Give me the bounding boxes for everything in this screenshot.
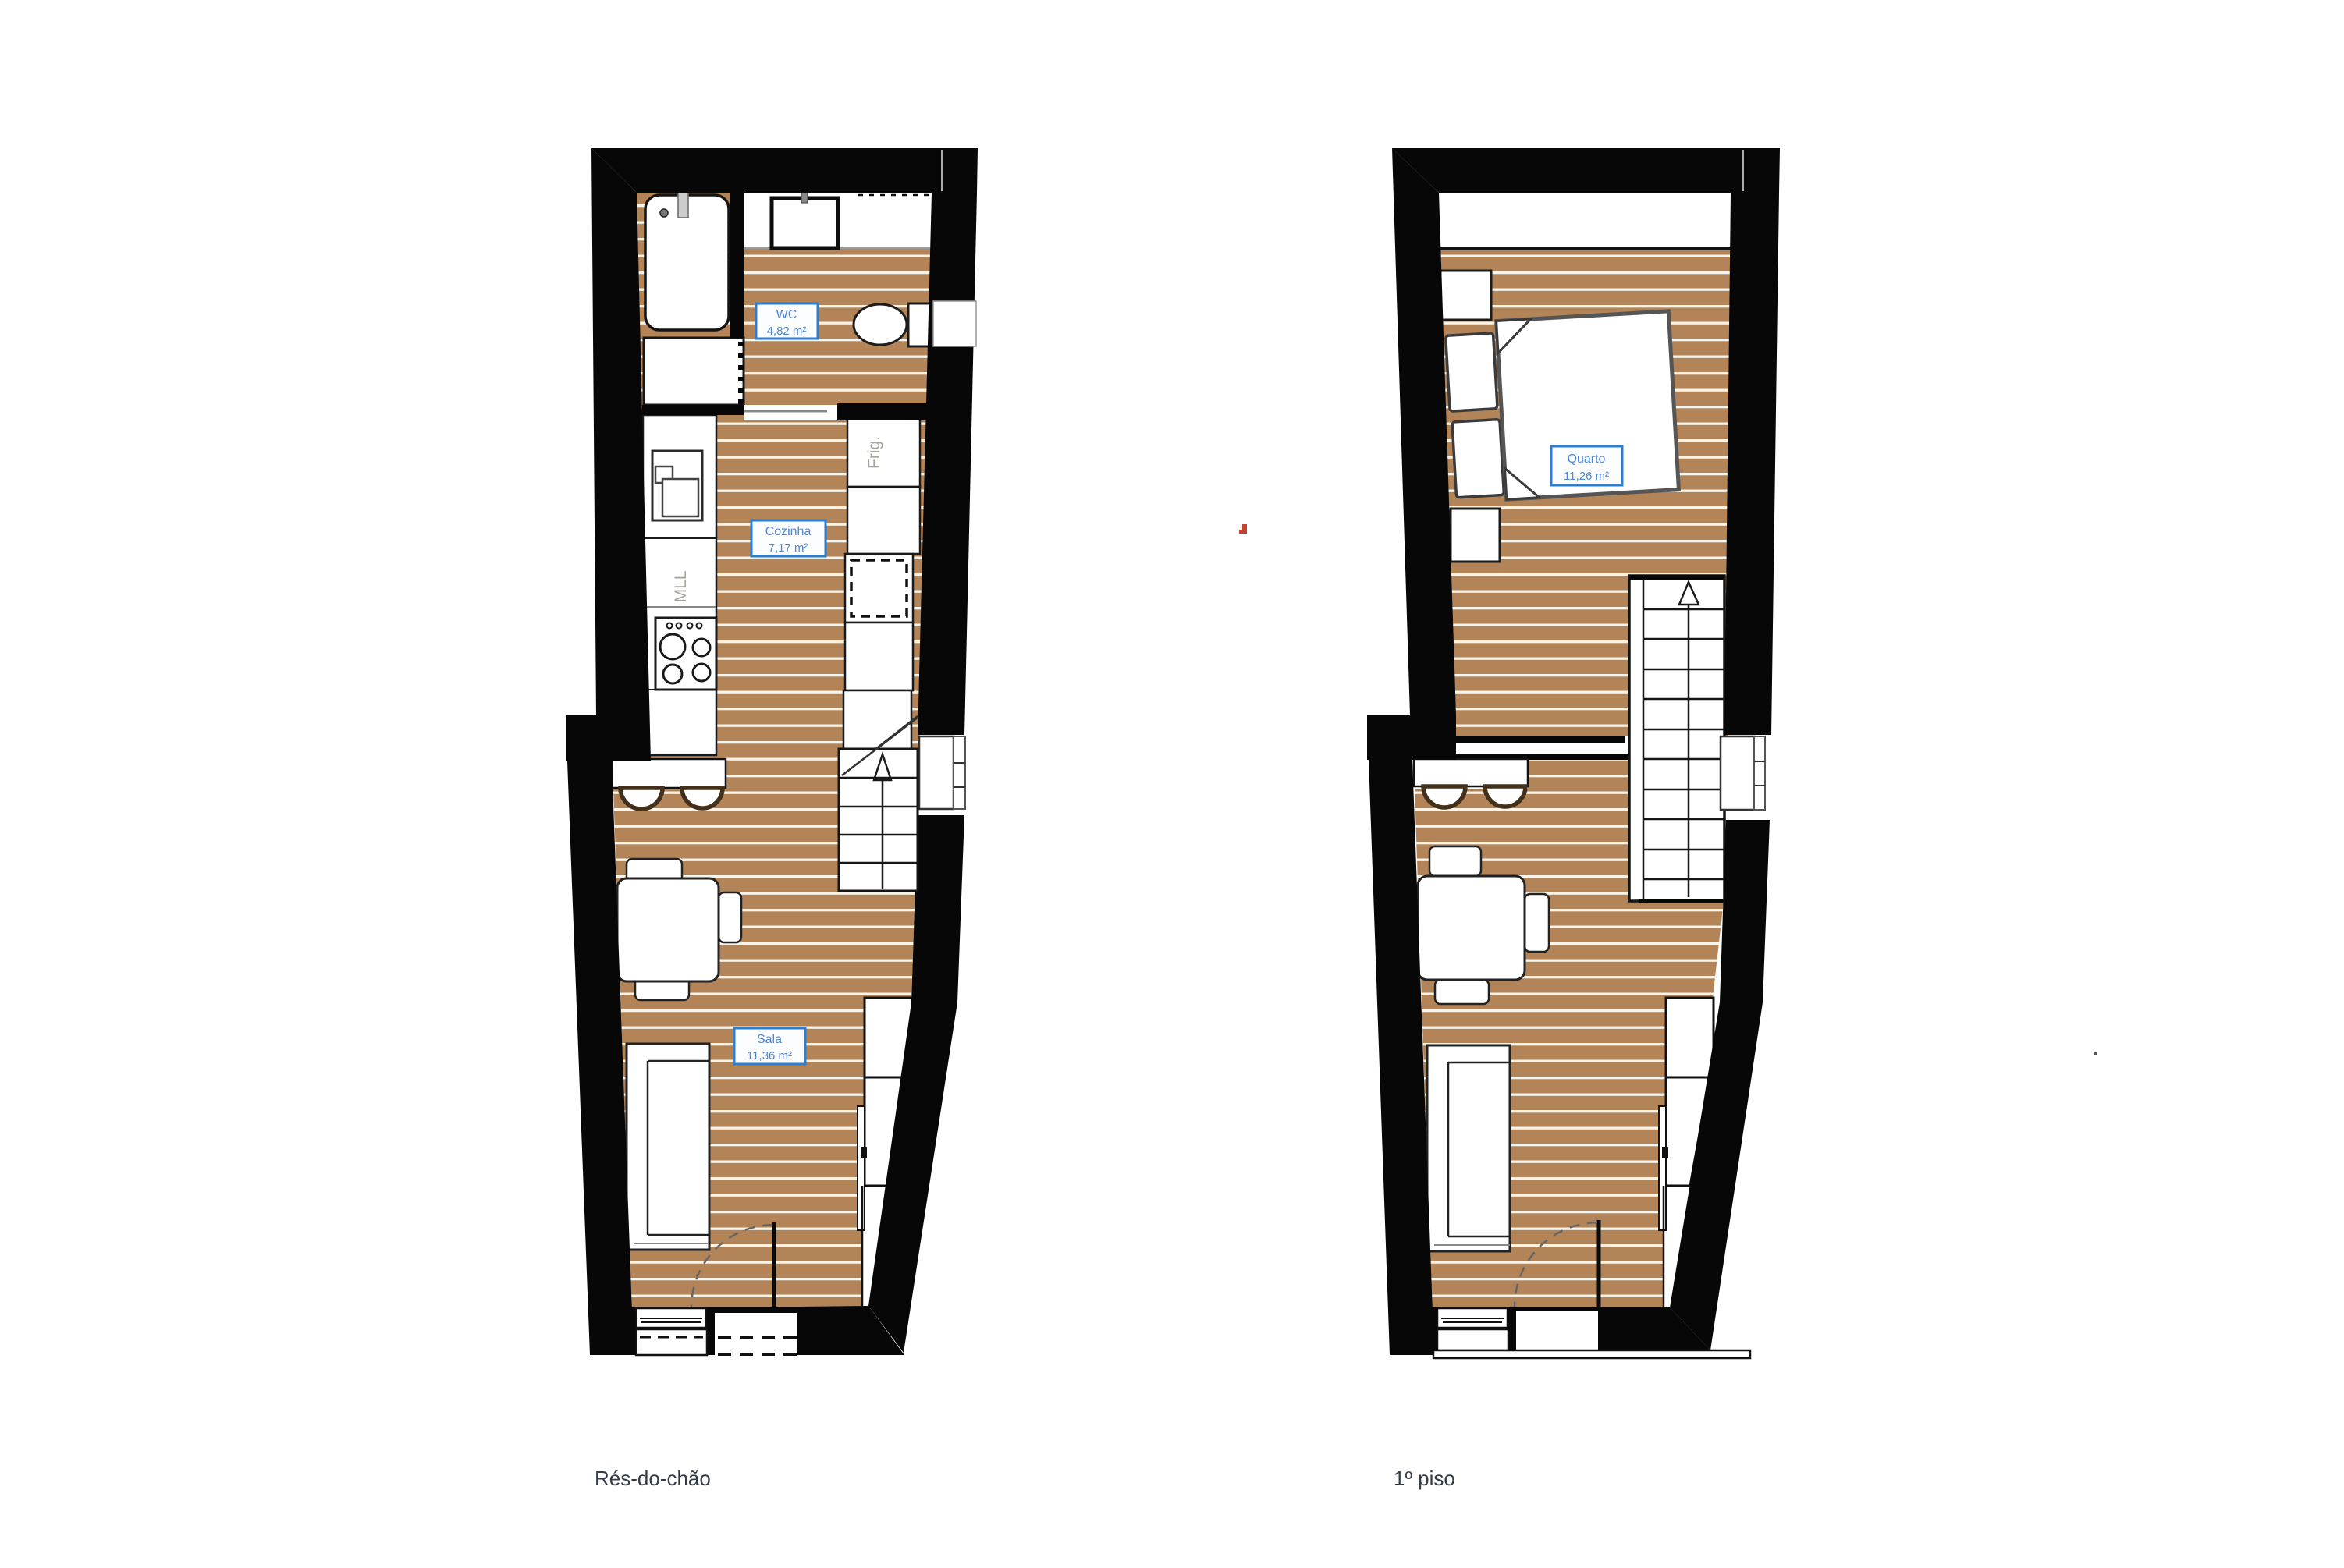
svg-text:Sala: Sala [757, 1033, 782, 1046]
svg-text:11,36 m²: 11,36 m² [747, 1049, 792, 1062]
svg-text:Rés-do-chão: Rés-do-chão [595, 1467, 711, 1490]
svg-text:4,82 m²: 4,82 m² [767, 325, 807, 338]
svg-text:WC: WC [776, 308, 797, 321]
svg-text:7,17 m²: 7,17 m² [769, 541, 808, 555]
svg-text:Quarto: Quarto [1568, 452, 1606, 466]
svg-text:1º piso: 1º piso [1394, 1467, 1455, 1490]
svg-text:Cozinha: Cozinha [765, 525, 812, 538]
svg-text:11,26 m²: 11,26 m² [1564, 470, 1609, 483]
svg-text:Frig.: Frig. [865, 436, 883, 469]
svg-text:MLL: MLL [672, 571, 690, 603]
